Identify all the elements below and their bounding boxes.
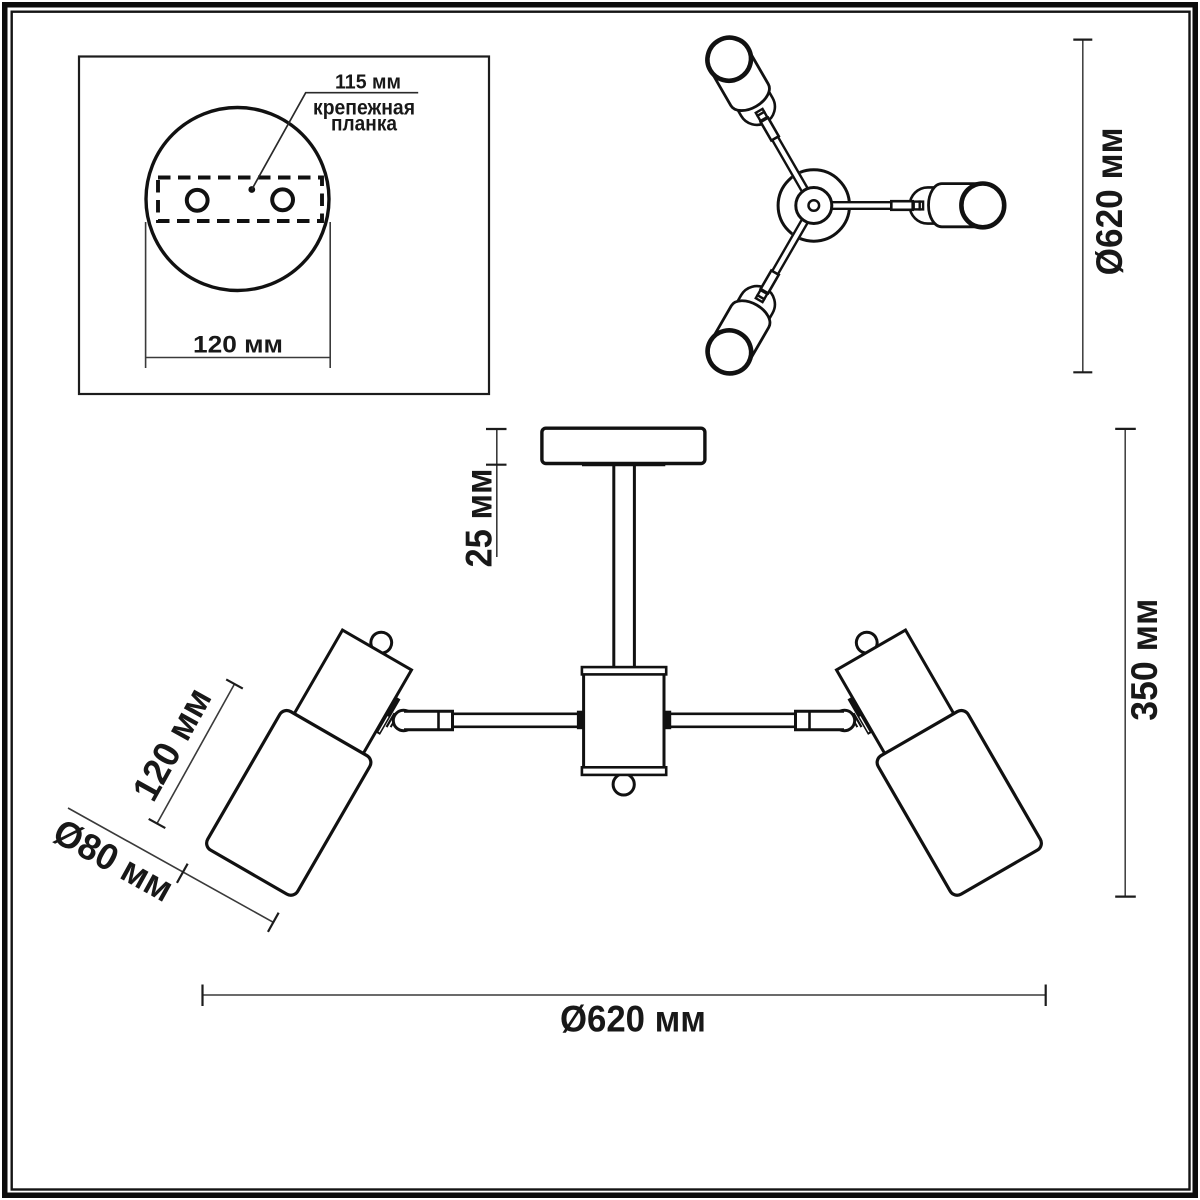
svg-text:25 мм: 25 мм: [459, 469, 500, 568]
svg-text:350 мм: 350 мм: [1124, 599, 1165, 721]
svg-text:120 мм: 120 мм: [193, 332, 283, 359]
svg-text:планка: планка: [331, 112, 397, 135]
svg-text:Ø620 мм: Ø620 мм: [560, 999, 706, 1040]
svg-text:Ø620 мм: Ø620 мм: [1089, 127, 1130, 275]
svg-text:115 мм: 115 мм: [335, 71, 401, 94]
